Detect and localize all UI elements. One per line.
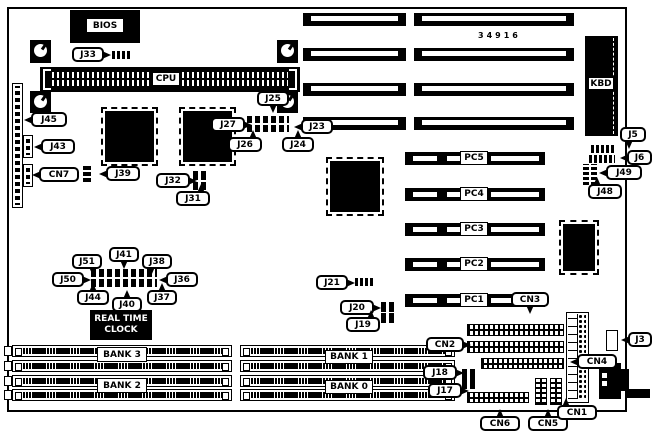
cpu-slot-bracket-right	[289, 69, 297, 90]
simm-endcap	[4, 346, 12, 356]
callout-j51: J51	[72, 254, 102, 269]
callout-j44: J44	[77, 290, 109, 305]
cpu-label-text: CPU	[156, 74, 177, 84]
bank3-label: BANK 3	[97, 347, 147, 362]
simm-endcap	[4, 361, 12, 371]
jumper-j21	[355, 278, 373, 286]
kbd-label: KBD	[588, 77, 614, 90]
callout-j27: J27	[211, 117, 245, 132]
rtc-chip: REAL TIME CLOCK	[90, 310, 152, 340]
power-connector-tab	[625, 389, 650, 398]
callout-j43: J43	[41, 139, 75, 154]
callout-j50: J50	[52, 272, 84, 287]
connector-cn3	[467, 324, 564, 336]
callout-j3: J3	[628, 332, 652, 347]
isa-slot	[414, 117, 574, 130]
callout-j24: J24	[282, 137, 314, 152]
pc5-slot-label: PC5	[460, 151, 488, 165]
bank0-label-text: BANK 0	[330, 382, 368, 392]
rtc-label-line2: CLOCK	[90, 325, 152, 336]
isa-slot	[303, 48, 406, 61]
pc3-label-text: PC3	[464, 224, 483, 234]
callout-j32: J32	[156, 173, 190, 188]
isa-slot	[414, 48, 574, 61]
simm-endcap	[4, 376, 12, 386]
pc4-label-text: PC4	[464, 189, 483, 199]
callout-cn3: CN3	[511, 292, 549, 307]
callout-j33: J33	[72, 47, 104, 62]
callout-cn7: CN7	[39, 167, 79, 182]
callout-j49: J49	[606, 165, 642, 180]
callout-cn4: CN4	[577, 354, 617, 369]
callout-j23: J23	[301, 119, 333, 134]
qfp-chip	[105, 111, 154, 162]
isa-slot	[303, 83, 406, 96]
callout-j21: J21	[316, 275, 348, 290]
rtc-label: REAL TIME CLOCK	[90, 310, 152, 336]
connector-j5	[591, 145, 614, 153]
jumper-j39	[83, 164, 91, 182]
connector-cn4-horizontal	[481, 358, 564, 369]
callout-cn1: CN1	[557, 405, 597, 420]
power-connector-pin	[602, 381, 607, 386]
callout-j5: J5	[620, 127, 646, 142]
power-connector-pin	[602, 373, 607, 378]
connector-cn6	[467, 392, 529, 403]
callout-j39: J39	[106, 166, 140, 181]
bios-chip: BIOS	[70, 10, 140, 43]
callout-j26: J26	[228, 137, 262, 152]
pc3-slot-label: PC3	[460, 222, 488, 236]
mounting-hole-icon	[34, 44, 47, 57]
bank1-label-text: BANK 1	[330, 352, 368, 362]
connector-cn2	[467, 341, 564, 353]
bank2-label-text: BANK 2	[103, 381, 141, 391]
connector-cn5-a	[535, 378, 547, 405]
pc4-slot-label: PC4	[460, 187, 488, 201]
connector-j6	[589, 155, 615, 163]
cpu-slot: CPU	[40, 67, 300, 92]
callout-j38: J38	[142, 254, 172, 269]
cpu-mount-top-left	[30, 40, 51, 63]
pc2-label-text: PC2	[464, 259, 483, 269]
bank0-label: BANK 0	[325, 380, 373, 394]
part-number: 34916	[478, 31, 521, 40]
cpu-slot-bracket-left	[43, 69, 51, 90]
callout-j19: J19	[346, 317, 380, 332]
callout-j25: J25	[257, 91, 289, 106]
qfp-chip	[563, 224, 595, 271]
jumper-j33	[112, 51, 130, 59]
connector-j45	[12, 83, 23, 208]
mounting-hole-icon	[281, 44, 294, 57]
motherboard-diagram: BIOS CPU 34916 KBD PC5 PC4 PC3	[0, 0, 652, 435]
pc3-slot: PC3	[405, 223, 545, 236]
cpu-mount-bottom-left	[30, 91, 51, 113]
pc2-slot-label: PC2	[460, 257, 488, 271]
callout-j36: J36	[166, 272, 198, 287]
callout-cn6: CN6	[480, 416, 520, 431]
jumper-j20	[381, 302, 394, 312]
bank3-label-text: BANK 3	[103, 350, 141, 360]
connector-cn5-b	[550, 378, 562, 405]
pc5-slot: PC5	[405, 152, 545, 165]
kbd-label-text: KBD	[590, 79, 611, 89]
connector-j43	[23, 135, 33, 158]
callout-j37: J37	[147, 290, 177, 305]
callout-j18: J18	[423, 365, 457, 380]
callout-j48: J48	[588, 184, 622, 199]
pc1-slot-label: PC1	[460, 293, 488, 307]
power-connector-step	[620, 369, 629, 391]
qfp-chip	[330, 161, 380, 212]
pc4-slot: PC4	[405, 188, 545, 201]
callout-cn2: CN2	[426, 337, 464, 352]
cpu-label: CPU	[152, 72, 180, 86]
bios-label-text: BIOS	[93, 21, 117, 31]
mounting-hole-icon	[34, 95, 47, 108]
jumper-j19	[381, 313, 394, 323]
callout-j41: J41	[109, 247, 139, 262]
isa-slot	[303, 13, 406, 26]
bank1-label: BANK 1	[325, 350, 373, 364]
isa-slot	[414, 13, 574, 26]
bank2-label: BANK 2	[97, 378, 147, 393]
callout-j45: J45	[31, 112, 67, 127]
pc2-slot: PC2	[405, 258, 545, 271]
callout-j6: J6	[627, 150, 652, 165]
callout-j17: J17	[428, 383, 462, 398]
isa-slot	[414, 83, 574, 96]
simm-endcap	[4, 390, 12, 400]
rtc-label-line1: REAL TIME	[90, 314, 152, 325]
bios-label: BIOS	[86, 18, 124, 33]
connector-j3	[606, 330, 618, 351]
pc1-label-text: PC1	[464, 295, 483, 305]
callout-j40: J40	[112, 297, 142, 312]
callout-j31: J31	[176, 191, 210, 206]
pc5-label-text: PC5	[464, 153, 483, 163]
cpu-mount-top-right	[277, 40, 298, 63]
kbd-connector: KBD	[585, 36, 618, 136]
